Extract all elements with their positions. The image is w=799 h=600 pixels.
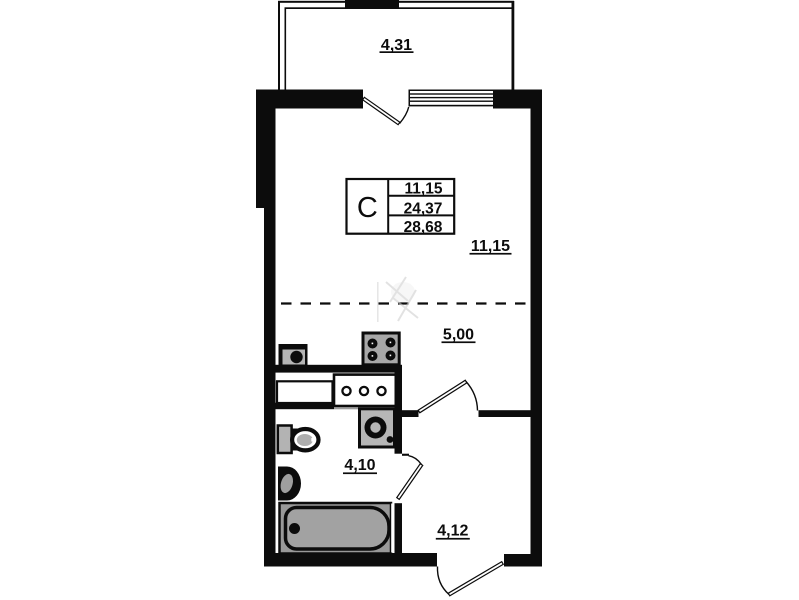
svg-text:28,68: 28,68: [404, 219, 443, 236]
svg-text:11,15: 11,15: [405, 181, 443, 198]
svg-text:4,10: 4,10: [344, 457, 375, 474]
svg-text:11,15: 11,15: [471, 238, 510, 255]
svg-text:4,12: 4,12: [437, 522, 468, 539]
svg-text:5,00: 5,00: [443, 326, 474, 343]
svg-text:24,37: 24,37: [404, 200, 443, 217]
svg-text:С: С: [357, 192, 378, 224]
